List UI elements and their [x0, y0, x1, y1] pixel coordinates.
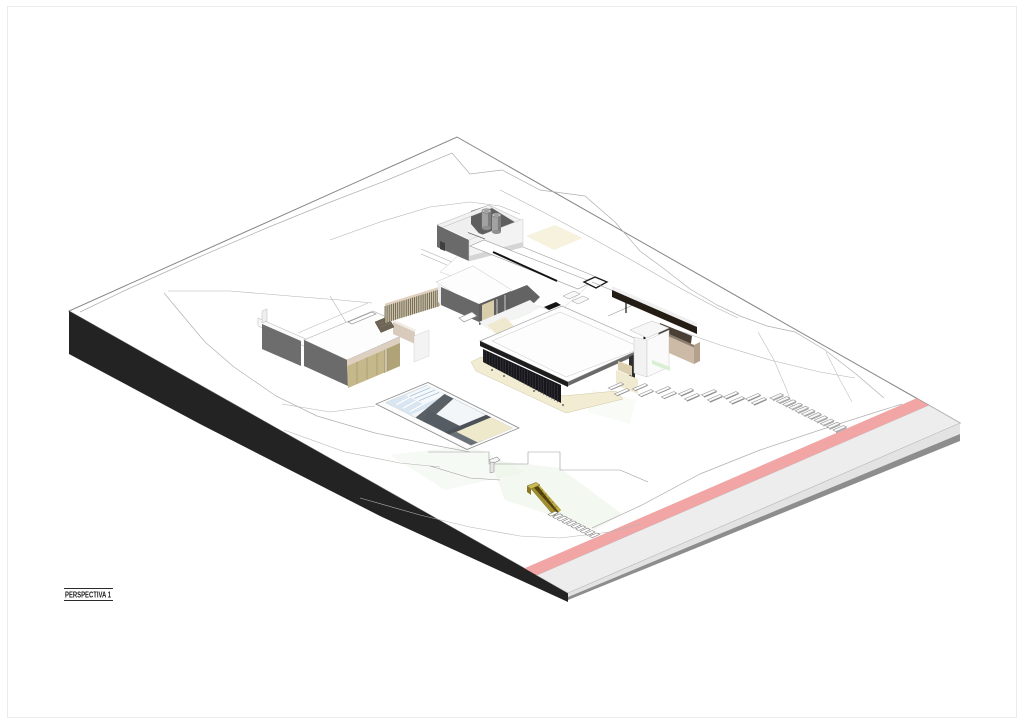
svg-text:PERSPECTIVA 1: PERSPECTIVA 1 [65, 591, 111, 600]
